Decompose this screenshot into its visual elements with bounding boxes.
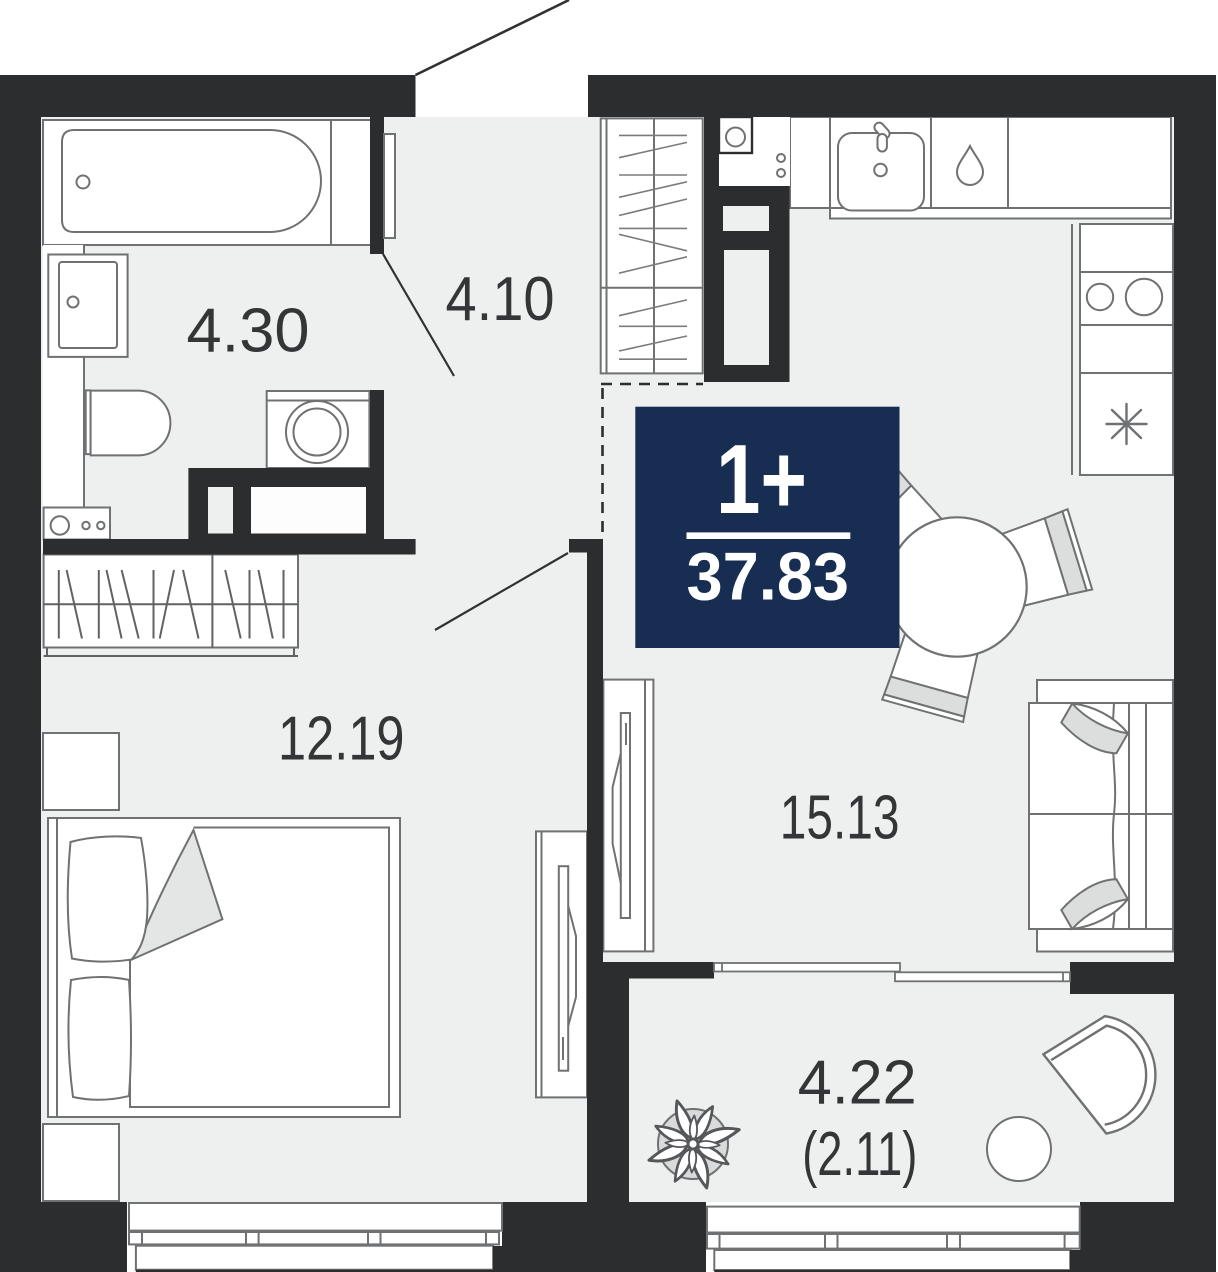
- svg-text:4.10: 4.10: [446, 265, 555, 334]
- svg-text:15.13: 15.13: [780, 784, 900, 853]
- svg-text:1+: 1+: [716, 424, 807, 534]
- svg-text:4.30: 4.30: [187, 297, 310, 366]
- svg-text:(2.11): (2.11): [802, 1120, 917, 1189]
- svg-text:37.83: 37.83: [687, 538, 850, 614]
- svg-text:4.22: 4.22: [798, 1048, 917, 1117]
- svg-text:12.19: 12.19: [278, 705, 405, 774]
